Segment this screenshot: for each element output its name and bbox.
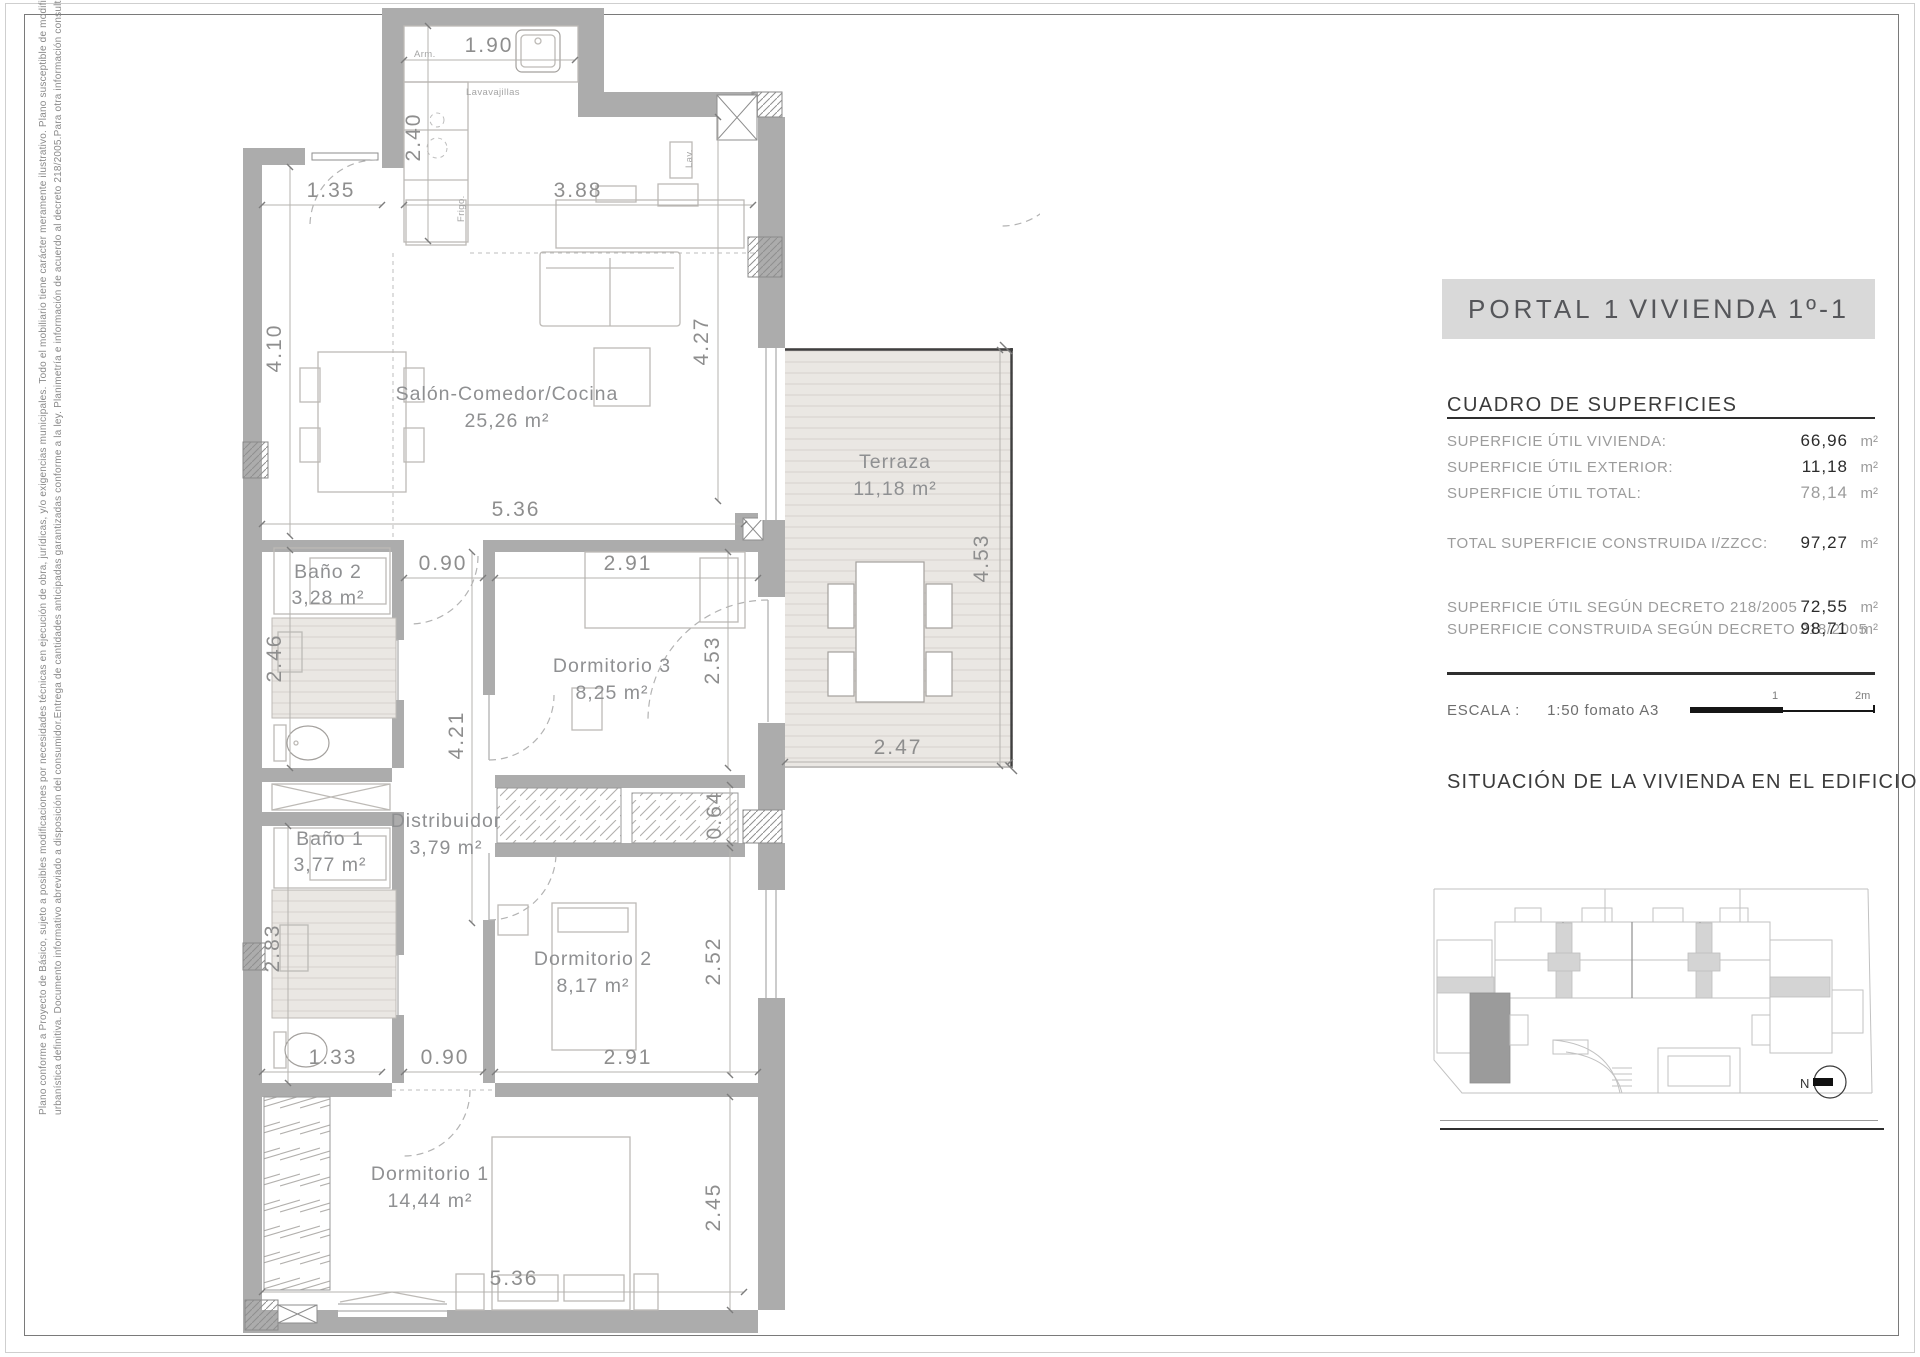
vivienda-label: VIVIENDA 1º-1 xyxy=(1629,294,1849,325)
room-name: Terraza xyxy=(859,451,931,473)
surface-value: 72,55 xyxy=(1800,597,1848,617)
plan-sheet: Plano conforme a Proyecto de Básico, suj… xyxy=(0,0,1920,1357)
appliance-label: Lavavajillas xyxy=(466,87,520,98)
dim-label: 2.53 xyxy=(701,636,724,685)
room-name: Dormitorio 3 xyxy=(553,655,671,677)
surface-unit: m² xyxy=(1861,599,1879,616)
dim-label: 0.90 xyxy=(419,552,468,575)
surface-label: SUPERFICIE ÚTIL SEGÚN DECRETO 218/2005 xyxy=(1447,599,1797,616)
room-name: Baño 2 xyxy=(294,561,362,583)
site-plan-rule-thick xyxy=(1440,1128,1884,1130)
surface-label: TOTAL SUPERFICIE CONSTRUIDA I/ZZCC: xyxy=(1447,535,1768,552)
scale-label: ESCALA : xyxy=(1447,702,1520,719)
surfaces-title-rule xyxy=(1447,417,1875,419)
floor-plan: 1.90 2.40 1.35 3.88 4.10 4.27 5.36 0.90 … xyxy=(180,0,1040,1357)
room-area: 8,17 m² xyxy=(556,975,629,997)
dim-label: 2.83 xyxy=(261,924,284,973)
surface-row: SUPERFICIE ÚTIL SEGÚN DECRETO 218/2005 7… xyxy=(1447,597,1878,617)
dim-label: 1.90 xyxy=(465,34,514,57)
dim-label: 3.88 xyxy=(554,179,603,202)
site-key-plan: N xyxy=(1430,880,1890,1100)
scalebar-end-cap xyxy=(1873,705,1875,713)
dim-label: 2.52 xyxy=(702,937,725,986)
surface-value: 98,71 xyxy=(1800,619,1848,639)
scalebar-end-label: 2m xyxy=(1855,690,1870,702)
site-gardens xyxy=(1553,1040,1740,1093)
site-building xyxy=(1437,908,1863,1083)
dim-label: 2.47 xyxy=(874,736,923,759)
scalebar-solid-segment xyxy=(1690,707,1783,713)
disclaimer-line-1: Plano conforme a Proyecto de Básico, suj… xyxy=(36,59,51,1115)
dim-label: 4.27 xyxy=(690,317,713,366)
dim-label: 5.36 xyxy=(492,498,541,521)
surface-row: SUPERFICIE ÚTIL VIVIENDA: 66,96 m² xyxy=(1447,431,1878,451)
dim-label: 2.46 xyxy=(263,634,286,683)
surface-unit: m² xyxy=(1861,459,1879,476)
surface-label: SUPERFICIE ÚTIL TOTAL: xyxy=(1447,485,1641,502)
room-area: 14,44 m² xyxy=(388,1190,473,1212)
highlighted-unit xyxy=(1470,993,1510,1083)
surface-unit: m² xyxy=(1861,433,1879,450)
room-area: 8,25 m² xyxy=(575,682,648,704)
site-plan-rule-thin xyxy=(1440,1120,1878,1121)
scalebar-thin-segment xyxy=(1783,710,1875,712)
surface-unit: m² xyxy=(1861,485,1879,502)
surface-label: SUPERFICIE ÚTIL EXTERIOR: xyxy=(1447,459,1673,476)
surface-value: 11,18 xyxy=(1802,457,1848,477)
disclaimer-line-2: urbanística definitiva. Documento inform… xyxy=(51,59,66,1115)
room-name: Dormitorio 1 xyxy=(371,1163,489,1185)
surfaces-table-title: CUADRO DE SUPERFICIES xyxy=(1447,394,1737,417)
appliance-label: Arm. xyxy=(414,49,436,60)
dim-label: 0.90 xyxy=(421,1046,470,1069)
room-name: Salón-Comedor/Cocina xyxy=(396,383,619,405)
room-name: Distribuidor xyxy=(391,810,502,832)
surface-label: SUPERFICIE ÚTIL VIVIENDA: xyxy=(1447,433,1667,450)
room-area: 3,28 m² xyxy=(291,587,364,609)
room-area: 11,18 m² xyxy=(853,478,937,500)
dim-label: 4.10 xyxy=(263,324,286,373)
scalebar-mid-label: 1 xyxy=(1772,690,1778,702)
appliance-label: Lav. xyxy=(684,149,695,168)
dim-label: 2.91 xyxy=(604,552,653,575)
dim-label: 1.33 xyxy=(309,1046,358,1069)
hall-cabinet xyxy=(272,784,390,810)
surface-row: TOTAL SUPERFICIE CONSTRUIDA I/ZZCC: 97,2… xyxy=(1447,533,1878,553)
scale-value: 1:50 fomato A3 xyxy=(1547,702,1659,719)
dim-label: 4.53 xyxy=(970,534,993,583)
room-area: 3,79 m² xyxy=(409,837,482,859)
surface-value: 66,96 xyxy=(1800,431,1848,451)
room-area: 25,26 m² xyxy=(465,410,550,432)
surface-value: 97,27 xyxy=(1800,533,1848,553)
surface-row: SUPERFICIE ÚTIL EXTERIOR: 11,18 m² xyxy=(1447,457,1878,477)
dim-label: 2.40 xyxy=(402,113,425,162)
situation-title: SITUACIÓN DE LA VIVIENDA EN EL EDIFICIO xyxy=(1447,771,1918,794)
appliance-label: Frigo. xyxy=(456,195,467,222)
dim-label: 0.64 xyxy=(703,791,726,840)
dim-label: 2.45 xyxy=(702,1183,725,1232)
living-room-furniture xyxy=(300,252,680,492)
north-label: N xyxy=(1800,1076,1809,1091)
surfaces-bottom-rule xyxy=(1447,672,1875,675)
room-area: 3,77 m² xyxy=(293,854,366,876)
surface-row: SUPERFICIE CONSTRUIDA SEGÚN DECRETO 218/… xyxy=(1447,619,1878,639)
room-name: Baño 1 xyxy=(296,828,364,850)
room-name: Dormitorio 2 xyxy=(534,948,652,970)
surface-unit: m² xyxy=(1861,621,1879,638)
portal-label: PORTAL 1 xyxy=(1468,294,1622,325)
dim-label: 4.21 xyxy=(445,711,468,760)
kitchen-fittings xyxy=(404,26,744,248)
surface-value: 78,14 xyxy=(1800,483,1848,503)
dim-label: 5.36 xyxy=(490,1267,539,1290)
surface-unit: m² xyxy=(1861,535,1879,552)
scale-caption: ESCALA : 1:50 fomato A3 xyxy=(1447,702,1659,719)
dim-label: 2.91 xyxy=(604,1046,653,1069)
unit-title-bar: PORTAL 1 VIVIENDA 1º-1 xyxy=(1442,279,1875,339)
surface-row: SUPERFICIE ÚTIL TOTAL: 78,14 m² xyxy=(1447,483,1878,503)
dim-label: 1.35 xyxy=(307,179,356,202)
